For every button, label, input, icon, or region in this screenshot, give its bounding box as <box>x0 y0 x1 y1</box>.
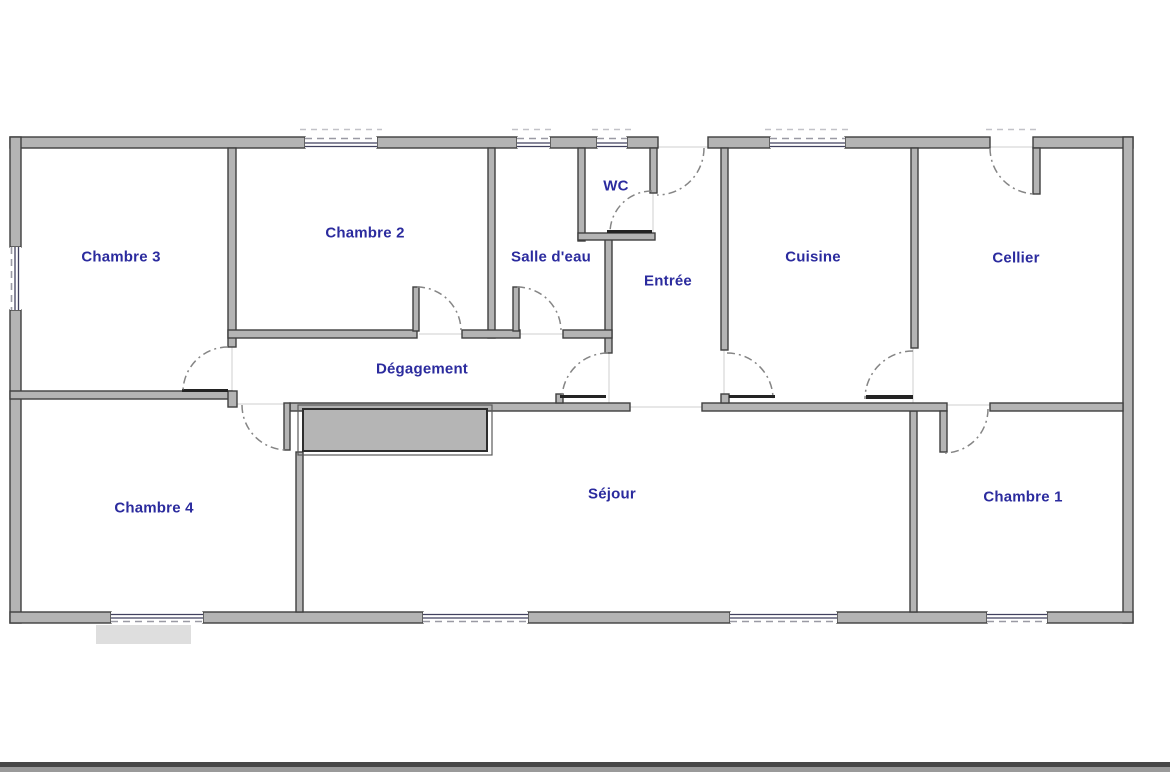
footer-rule <box>0 762 1170 772</box>
walls <box>10 137 1133 623</box>
terrace-step <box>96 625 191 644</box>
windows <box>10 130 1047 624</box>
door-leaf-lines <box>182 230 913 399</box>
floorplan-page: Chambre 3 Chambre 2 Salle d'eau WC Entré… <box>0 0 1170 772</box>
closet <box>298 405 492 455</box>
floorplan-svg <box>0 0 1170 772</box>
